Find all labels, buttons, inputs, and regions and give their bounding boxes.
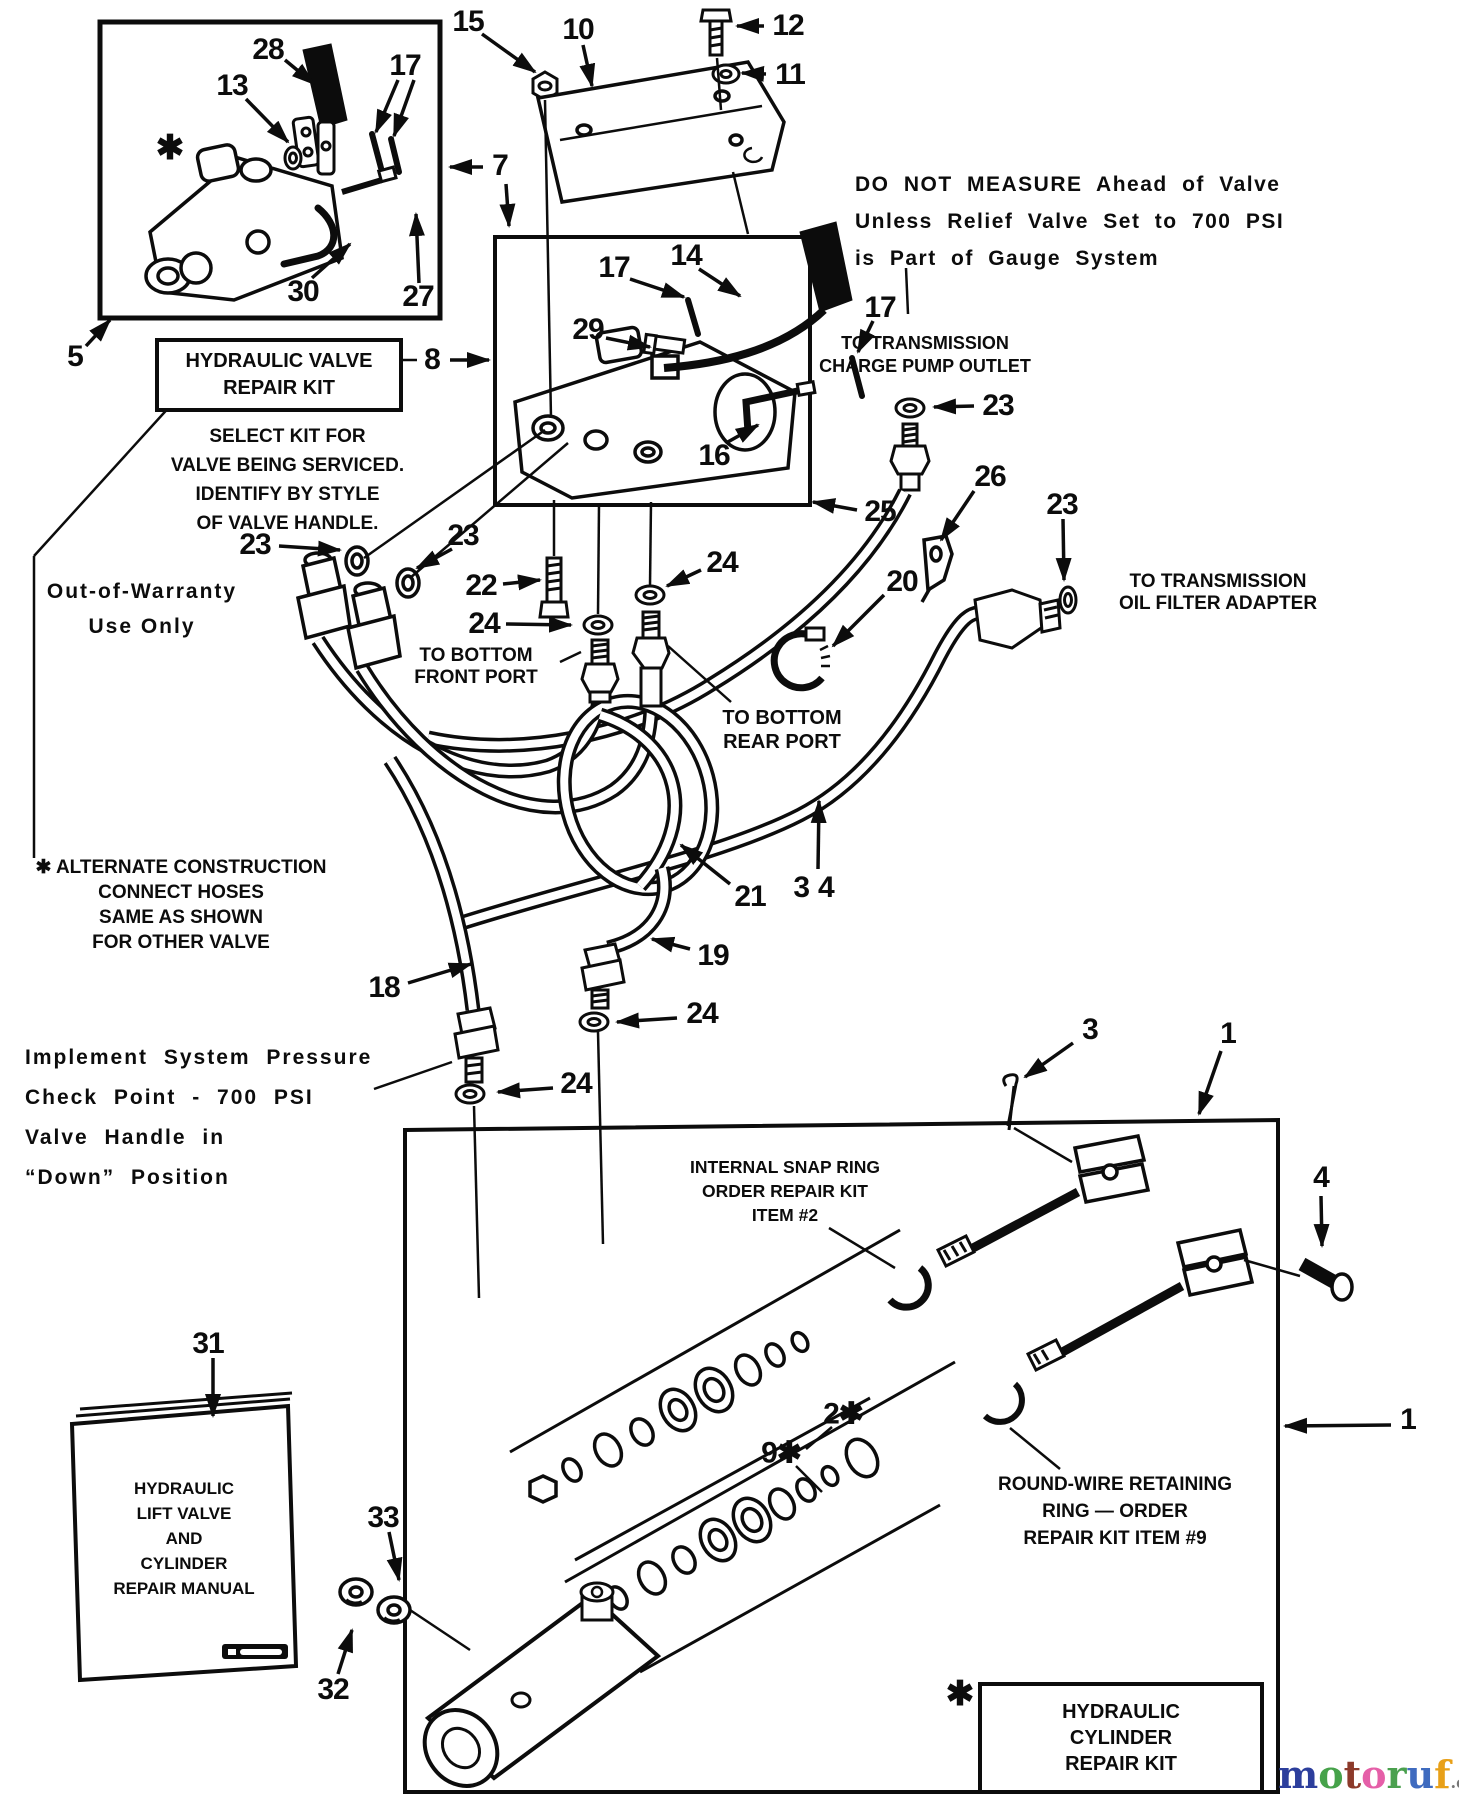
note-line: REAR PORT	[682, 730, 882, 754]
note-line: DO NOT MEASURE Ahead of Valve	[855, 166, 1284, 203]
note-line: REPAIR KIT ITEM #9	[965, 1525, 1265, 1552]
note-line: HYDRAULIC	[84, 1476, 284, 1501]
note-round-wire-ring: ROUND-WIRE RETAININGRING — ORDERREPAIR K…	[965, 1471, 1265, 1552]
part-label-21: 21	[734, 880, 765, 914]
part-label-20: 20	[886, 565, 917, 599]
note-line: TO BOTTOM	[376, 645, 576, 667]
note-line: LIFT VALVE	[84, 1501, 284, 1526]
part-label-33: 33	[367, 1501, 398, 1535]
part-label-27: 27	[402, 280, 433, 314]
note-line: INTERNAL SNAP RING	[660, 1155, 910, 1179]
note-charge-pump-outlet: TO TRANSMISSIONCHARGE PUMP OUTLET	[775, 332, 1075, 378]
part-label-30: 30	[287, 275, 318, 309]
note-line: ORDER REPAIR KIT	[660, 1179, 910, 1203]
note-line: CHARGE PUMP OUTLET	[775, 355, 1075, 378]
note-line: HYDRAULIC	[982, 1699, 1260, 1725]
part-label-28: 28	[252, 33, 283, 67]
part-label-ast: ✱	[946, 1674, 975, 1714]
part-label-19: 19	[697, 939, 728, 973]
note-line: TO TRANSMISSION	[1093, 571, 1343, 593]
part-label-16: 16	[698, 439, 729, 473]
part-label-24: 24	[706, 546, 737, 580]
part-label-32: 32	[317, 1673, 348, 1707]
note-line: FRONT PORT	[376, 667, 576, 689]
note-line: Implement System Pressure	[25, 1038, 372, 1078]
note-line: SAME AS SHOWN	[26, 905, 336, 930]
note-implement-check-point: Implement System PressureCheck Point - 7…	[25, 1038, 372, 1198]
motoruf-letter: f	[1434, 1752, 1450, 1797]
note-oil-filter-adapter: TO TRANSMISSIONOIL FILTER ADAPTER	[1093, 571, 1343, 615]
note-line: AND	[84, 1526, 284, 1551]
note-line: is Part of Gauge System	[855, 240, 1284, 277]
motoruf-letter: o	[1318, 1752, 1343, 1797]
manual-cover-text: HYDRAULICLIFT VALVEANDCYLINDERREPAIR MAN…	[84, 1476, 284, 1601]
part-label-24: 24	[686, 997, 717, 1031]
part-label-22: 22	[465, 569, 496, 603]
note-line: REPAIR KIT	[982, 1751, 1260, 1777]
part-label-25: 25	[864, 495, 895, 529]
note-line: SELECT KIT FOR	[140, 422, 435, 451]
part-label-1: 1	[1220, 1017, 1236, 1051]
hydraulic-parts-diagram: 281317✱302751510121178171417291623232322…	[0, 0, 1459, 1800]
note-line: ✱ ALTERNATE CONSTRUCTION	[26, 855, 336, 880]
part-label-18: 18	[368, 971, 399, 1005]
part-label-9ast: 9✱	[761, 1436, 801, 1471]
note-select-kit: SELECT KIT FORVALVE BEING SERVICED.IDENT…	[140, 422, 435, 538]
hydraulic-valve-repair-kit-box: HYDRAULIC VALVEREPAIR KIT	[155, 338, 403, 412]
part-label-2ast: 2✱	[823, 1397, 863, 1432]
motoruf-letter: m	[1278, 1752, 1318, 1797]
part-label-7: 7	[492, 149, 508, 183]
part-label-17: 17	[864, 291, 895, 325]
note-line: TO TRANSMISSION	[775, 332, 1075, 355]
note-line: ITEM #2	[660, 1203, 910, 1227]
part-label-ast: ✱	[156, 128, 185, 168]
motoruf-letter: r	[1387, 1752, 1407, 1797]
note-line: VALVE BEING SERVICED.	[140, 451, 435, 480]
motoruf-domain-suffix: .de	[1451, 1773, 1459, 1792]
note-line: REPAIR MANUAL	[84, 1576, 284, 1601]
part-label-15: 15	[452, 5, 483, 39]
note-out-of-warranty: Out-of-WarrantyUse Only	[17, 574, 267, 644]
note-line: CYLINDER	[84, 1551, 284, 1576]
part-label-14: 14	[670, 239, 701, 273]
note-line: Use Only	[17, 609, 267, 644]
note-alternate-construction: ✱ ALTERNATE CONSTRUCTIONCONNECT HOSESSAM…	[26, 855, 336, 955]
motoruf-letter: u	[1407, 1752, 1435, 1797]
part-label-8: 8	[424, 343, 440, 377]
part-label-13: 13	[216, 69, 247, 103]
note-front-port: TO BOTTOMFRONT PORT	[376, 645, 576, 689]
note-internal-snap-ring: INTERNAL SNAP RINGORDER REPAIR KITITEM #…	[660, 1155, 910, 1227]
part-label-23: 23	[982, 389, 1013, 423]
note-line: ROUND-WIRE RETAINING	[965, 1471, 1265, 1498]
note-line: RING — ORDER	[965, 1498, 1265, 1525]
part-label-26: 26	[974, 460, 1005, 494]
hydraulic-cylinder-repair-kit-box: HYDRAULICCYLINDERREPAIR KIT	[978, 1682, 1264, 1794]
note-line: REPAIR KIT	[159, 375, 399, 402]
note-line: “Down” Position	[25, 1158, 372, 1198]
note-line: HYDRAULIC VALVE	[159, 348, 399, 375]
part-label-23: 23	[447, 519, 478, 553]
part-label-17: 17	[598, 251, 629, 285]
note-line: CYLINDER	[982, 1725, 1260, 1751]
part-label-24: 24	[468, 607, 499, 641]
note-line: OF VALVE HANDLE.	[140, 509, 435, 538]
part-label-3: 3	[1082, 1013, 1098, 1047]
note-line: TO BOTTOM	[682, 706, 882, 730]
part-label-34: 34	[793, 871, 842, 905]
motoruf-letter: o	[1361, 1752, 1386, 1797]
part-label-31: 31	[192, 1327, 223, 1361]
motoruf-letter: t	[1344, 1752, 1362, 1797]
part-label-12: 12	[772, 9, 803, 43]
note-line: Valve Handle in	[25, 1118, 372, 1158]
part-label-24: 24	[560, 1067, 591, 1101]
motoruf-logo-text: motoruf	[1278, 1752, 1451, 1797]
note-do-not-measure: DO NOT MEASURE Ahead of ValveUnless Reli…	[855, 166, 1284, 277]
part-label-23: 23	[1046, 488, 1077, 522]
note-line: CONNECT HOSES	[26, 880, 336, 905]
note-line: Out-of-Warranty	[17, 574, 267, 609]
part-label-17: 17	[389, 49, 420, 83]
motoruf-watermark: motoruf.de	[1278, 1752, 1459, 1797]
note-line: OIL FILTER ADAPTER	[1093, 593, 1343, 615]
note-line: Unless Relief Valve Set to 700 PSI	[855, 203, 1284, 240]
note-line: IDENTIFY BY STYLE	[140, 480, 435, 509]
note-line: Check Point - 700 PSI	[25, 1078, 372, 1118]
note-line: FOR OTHER VALVE	[26, 930, 336, 955]
part-label-4: 4	[1313, 1161, 1329, 1195]
part-label-1: 1	[1400, 1403, 1416, 1437]
part-label-29: 29	[572, 313, 603, 347]
note-rear-port: TO BOTTOMREAR PORT	[682, 706, 882, 754]
part-label-11: 11	[775, 58, 805, 92]
part-label-5: 5	[67, 340, 83, 374]
part-label-10: 10	[562, 13, 593, 47]
